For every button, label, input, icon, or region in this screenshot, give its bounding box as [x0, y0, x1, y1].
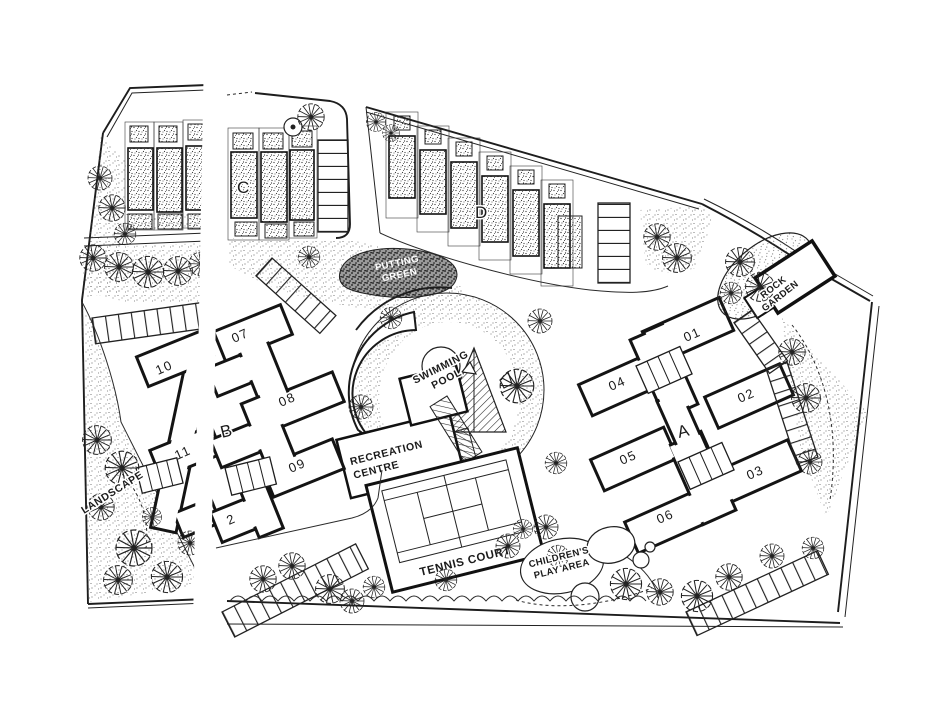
- terrace-c-left-blocks: [125, 120, 210, 231]
- play-mound-3: [571, 583, 599, 611]
- garden-feature-dot: [291, 125, 296, 130]
- scanned-site-plan-page: 10 11 LANDSCAPE: [0, 0, 943, 717]
- building-c-label: C: [237, 178, 250, 197]
- building-d-label: D: [475, 203, 488, 222]
- site-plan-drawing: 10 11 LANDSCAPE: [0, 0, 943, 717]
- play-mound-5: [645, 542, 655, 552]
- play-mound-4: [633, 552, 649, 568]
- parking-strip-c: [318, 140, 348, 232]
- parking-strip-d: [598, 203, 630, 283]
